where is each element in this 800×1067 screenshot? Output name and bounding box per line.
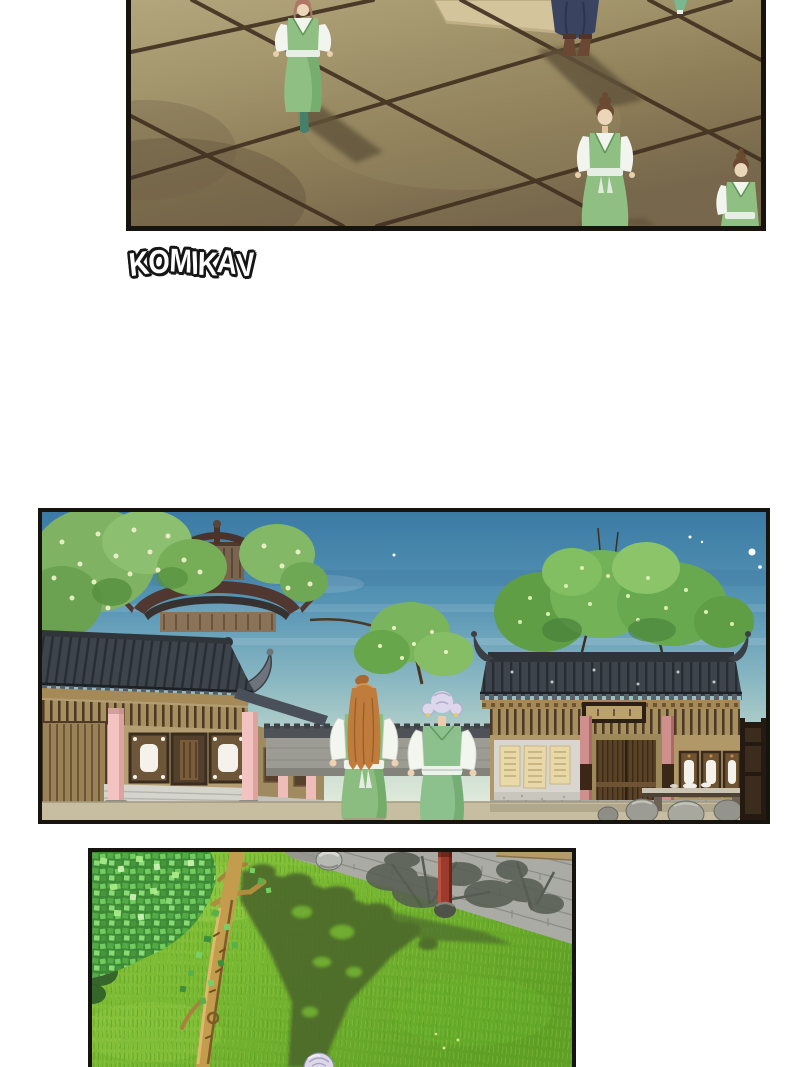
watermark-letter: K (197, 245, 217, 284)
panel-street-art (42, 512, 766, 820)
panel-street (38, 508, 770, 824)
wall-stone-ball (316, 852, 342, 870)
panel-garden-art (92, 852, 572, 1067)
panel-courtyard-art (131, 0, 761, 226)
watermark-letter: K (127, 244, 150, 285)
watermark-logo: KOMIKAV (129, 244, 254, 282)
panel-garden (88, 848, 576, 1067)
lattice-door (172, 734, 206, 784)
watermark-letter: V (235, 245, 255, 285)
lattice-window (210, 734, 246, 782)
watermark-letter: M (168, 241, 192, 280)
tile-floor (131, 0, 761, 226)
lattice-window (130, 734, 168, 782)
right-hall (471, 631, 751, 808)
panel-courtyard (126, 0, 766, 231)
watermark-letter: O (148, 243, 170, 282)
comic-page: KOMIKAV (0, 0, 800, 1067)
wooden-railing (740, 718, 766, 820)
posted-notices (500, 746, 570, 788)
